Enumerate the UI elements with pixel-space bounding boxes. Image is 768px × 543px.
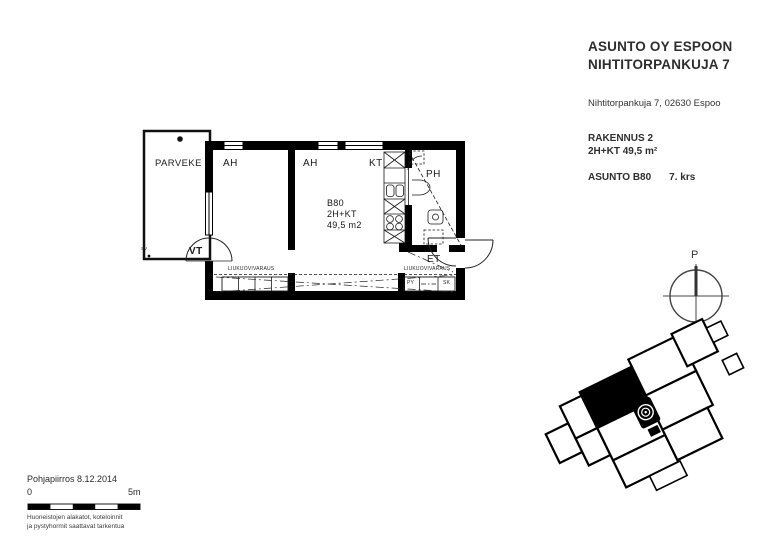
scale-end-label: 5m: [128, 487, 141, 497]
title-block: ASUNTO OY ESPOON NIHTITORPANKUJA 7: [588, 38, 732, 74]
scale-bar: [28, 504, 140, 510]
unit-type: 2H+KT: [327, 209, 362, 220]
label-bathroom: PH: [426, 169, 441, 180]
label-room2: AH: [303, 158, 318, 169]
label-room1: AH: [223, 158, 238, 169]
note-line1: Huoneistojen alakatot, koteloinnit: [27, 513, 124, 522]
label-kitchen: KT: [369, 158, 383, 169]
company-name-line1: ASUNTO OY ESPOON: [588, 38, 732, 56]
bathroom-fittings: [408, 151, 462, 247]
unit-info: B80 2H+KT 49,5 m2: [327, 198, 362, 231]
floor-plan-page: PARVEKE AH AH KT PH ET VT SV B80 2H+KT 4…: [0, 0, 768, 543]
label-balcony-door: VT: [189, 246, 203, 257]
note-line2: ja pystyhormit saattavat tarkentua: [27, 522, 124, 531]
site-key-plan: [530, 312, 768, 523]
scale-start-label: 0: [27, 487, 32, 497]
unit-area: 49,5 m2: [327, 220, 362, 231]
floor-number: 7. krs: [669, 172, 695, 183]
building-info: RAKENNUS 2 2H+KT 49,5 m²: [588, 133, 657, 158]
closet-lines: [214, 275, 456, 292]
apartment-label: ASUNTO B80: [588, 172, 651, 183]
label-sliding-door-left: LIUKUOVIVARAUS: [228, 266, 274, 272]
label-closet-py: PY: [407, 280, 414, 286]
label-balcony: PARVEKE: [155, 158, 202, 169]
building-label: RAKENNUS 2: [588, 133, 657, 146]
compass-north-label: P: [691, 249, 698, 261]
label-sliding-door-right: LIUKUOVIVARAUS: [404, 266, 450, 272]
unit-id: B80: [327, 198, 362, 209]
label-closet-sk: SK: [443, 280, 450, 286]
label-entrance: ET: [427, 254, 441, 265]
compass-icon: [663, 264, 729, 328]
address-line: Nihtitorpankuja 7, 02630 Espoo: [588, 98, 721, 109]
kitchen-fittings: [384, 152, 405, 243]
label-sv: SV: [141, 246, 147, 251]
disclaimer-note: Huoneistojen alakatot, koteloinnit ja py…: [27, 513, 124, 531]
drawing-title: Pohjapiirros 8.12.2014: [27, 474, 117, 484]
floor-plan-drawing: [0, 0, 768, 543]
apartment-info: ASUNTO B807. krs: [588, 172, 695, 183]
apartment-type: 2H+KT 49,5 m²: [588, 146, 657, 159]
company-name-line2: NIHTITORPANKUJA 7: [588, 56, 732, 74]
